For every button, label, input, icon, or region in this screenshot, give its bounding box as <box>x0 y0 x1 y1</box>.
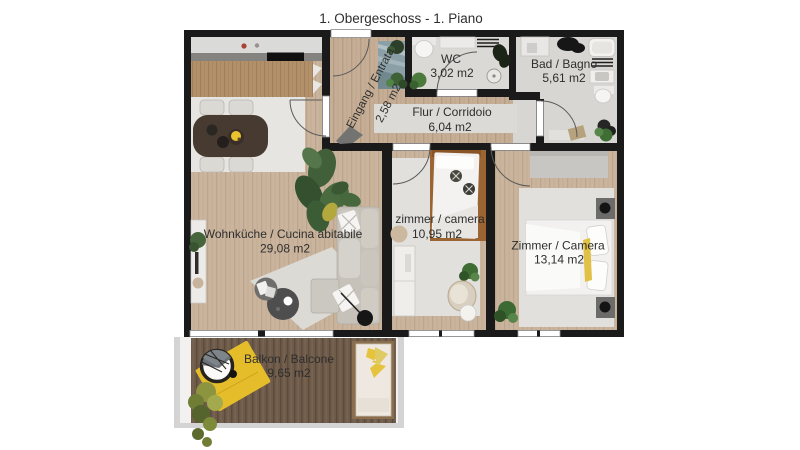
svg-text:9,65 m2: 9,65 m2 <box>267 366 311 380</box>
svg-text:3,02 m2: 3,02 m2 <box>430 66 474 80</box>
svg-text:zimmer / camera: zimmer / camera <box>395 212 485 226</box>
svg-text:5,61 m2: 5,61 m2 <box>542 71 586 85</box>
svg-text:1. Obergeschoss - 1. Piano: 1. Obergeschoss - 1. Piano <box>319 11 483 26</box>
svg-text:29,08 m2: 29,08 m2 <box>260 242 310 256</box>
svg-text:Bad / Bagno: Bad / Bagno <box>531 57 597 71</box>
svg-text:10,95 m2: 10,95 m2 <box>412 227 462 241</box>
svg-text:Wohnküche / Cucina abitabile: Wohnküche / Cucina abitabile <box>204 227 363 241</box>
svg-text:Zimmer / Camera: Zimmer / Camera <box>511 239 605 253</box>
svg-text:WC: WC <box>441 52 461 66</box>
svg-text:Balkon / Balcone: Balkon / Balcone <box>244 352 334 366</box>
svg-text:13,14 m2: 13,14 m2 <box>534 253 584 267</box>
svg-text:6,04 m2: 6,04 m2 <box>428 120 472 134</box>
svg-text:Flur / Corridoio: Flur / Corridoio <box>412 105 492 119</box>
